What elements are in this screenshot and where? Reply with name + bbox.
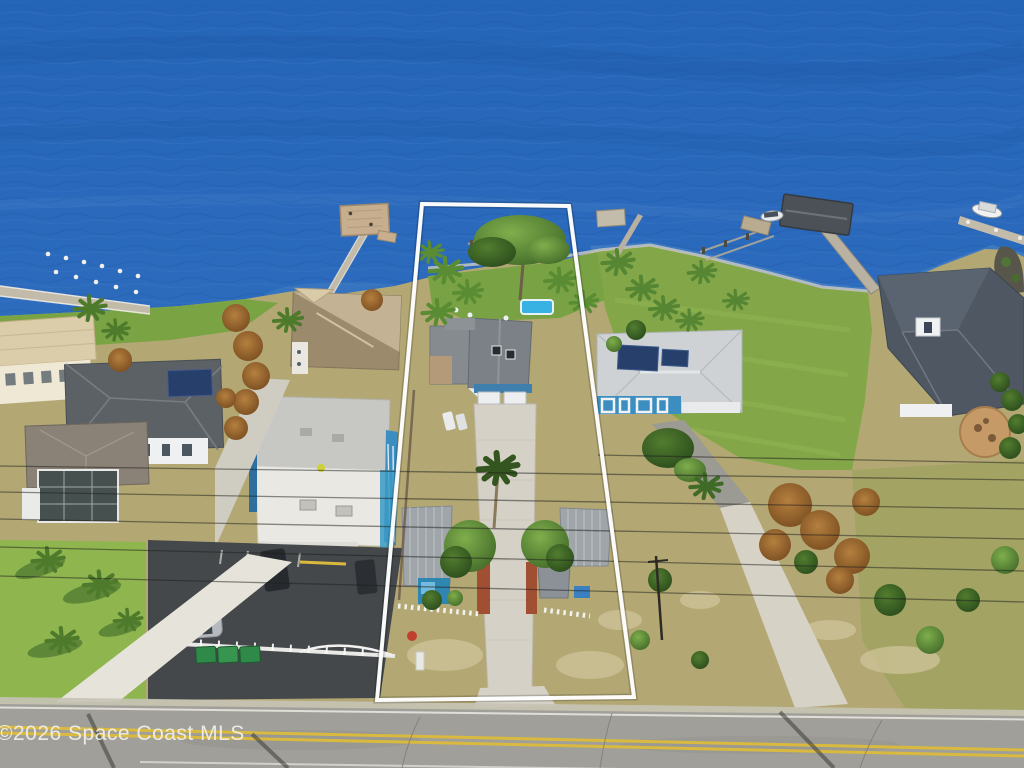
mls-watermark: ©2026 Space Coast MLS <box>0 722 245 745</box>
tan-roof-house <box>291 288 402 374</box>
garage-door <box>478 392 500 404</box>
solar-panel-array <box>617 345 658 371</box>
white-statue <box>416 652 424 670</box>
green-dumpsters <box>196 644 261 665</box>
garage-door <box>504 392 526 404</box>
brick-walk <box>526 562 537 614</box>
rooftop-solar-panels <box>168 369 213 397</box>
red-yard-bush <box>407 631 417 641</box>
aerial-photo-canvas: ©2026 Space Coast MLS <box>0 0 1024 768</box>
yellow-curb <box>300 562 346 564</box>
screened-lanai <box>38 470 118 522</box>
dark-vehicle <box>354 559 377 595</box>
solar-panel-array <box>662 349 689 366</box>
blue-tarp <box>574 586 590 598</box>
aerial-photo: ©2026 Space Coast MLS <box>0 0 1024 768</box>
swimming-pool <box>521 300 553 314</box>
